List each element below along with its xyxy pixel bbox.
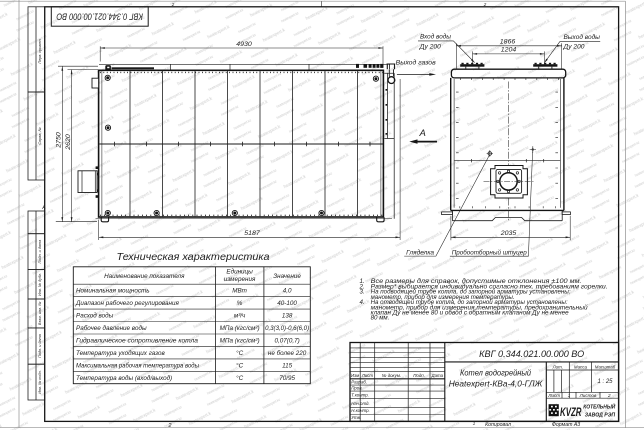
svg-text:Температура уходящих газов: Температура уходящих газов <box>76 349 165 357</box>
svg-text:2035: 2035 <box>500 230 517 237</box>
svg-text:МПа (кгс/см²): МПа (кгс/см²) <box>220 325 260 332</box>
svg-text:4,0: 4,0 <box>283 288 292 295</box>
svg-text:КВГ 0.344.021.00.000 ВО: КВГ 0.344.021.00.000 ВО <box>479 349 584 359</box>
svg-text:Вход воды: Вход воды <box>420 33 451 41</box>
svg-text:Единицы: Единицы <box>226 268 253 276</box>
svg-text:°С: °С <box>236 349 244 357</box>
svg-text:Выход газов: Выход газов <box>396 59 437 67</box>
svg-text:Перв. примен.: Перв. примен. <box>38 38 42 63</box>
svg-text:Значение: Значение <box>273 273 301 280</box>
svg-text:Пров.: Пров. <box>351 386 363 391</box>
svg-text:Инв. № дубл.: Инв. № дубл. <box>38 273 42 296</box>
svg-text:3.: 3. <box>360 289 365 296</box>
svg-text:Гидравлическое сопротивление к: Гидравлическое сопротивление котла <box>76 337 199 345</box>
svg-text:%: % <box>237 300 243 307</box>
svg-text:Взам. инв. №: Взам. инв. № <box>38 302 42 325</box>
svg-text:Пробоотборный штуцер: Пробоотборный штуцер <box>452 249 527 257</box>
svg-text:5187: 5187 <box>244 230 260 237</box>
svg-text:Утв.: Утв. <box>351 415 361 420</box>
svg-text:Диапазон рабочего регулировани: Диапазон рабочего регулирования <box>75 299 179 307</box>
svg-text:70/95: 70/95 <box>279 375 295 382</box>
svg-text:Выход воды: Выход воды <box>563 33 600 41</box>
svg-text:1866: 1866 <box>500 39 516 46</box>
svg-text:КВГ 0.344.021.00.000 ВО: КВГ 0.344.021.00.000 ВО <box>56 11 143 21</box>
svg-text:Подп. и дата: Подп. и дата <box>38 334 42 358</box>
svg-text:Дата: Дата <box>431 373 444 378</box>
svg-text:Heatexpert-КВа-4,0-ГЛЖ: Heatexpert-КВа-4,0-ГЛЖ <box>449 379 544 389</box>
svg-text:МПа (кгс/см²): МПа (кгс/см²) <box>220 338 260 345</box>
svg-text:Рабочее давление воды: Рабочее давление воды <box>76 324 147 332</box>
svg-text:Нач.отд.: Нач.отд. <box>351 401 370 406</box>
svg-text:измерения: измерения <box>224 276 256 283</box>
svg-text:Номинальная мощность: Номинальная мощность <box>76 288 150 295</box>
svg-text:Максимальная рабочая температу: Максимальная рабочая температура воды <box>76 361 199 369</box>
svg-text:Подп.: Подп. <box>413 373 425 378</box>
svg-text:80 мм.: 80 мм. <box>371 315 390 322</box>
svg-text:1204: 1204 <box>501 47 517 54</box>
svg-text:МВт: МВт <box>232 288 247 295</box>
svg-text:Н.контр.: Н.контр. <box>351 408 370 413</box>
svg-text:А: А <box>41 205 46 211</box>
svg-text:Техническая характеристика: Техническая характеристика <box>117 252 270 263</box>
svg-text:Копировал: Копировал <box>485 422 511 428</box>
svg-text:клапан Ду не менее 80 и обвод: клапан Ду не менее 80 и обвод с обратным… <box>371 310 570 317</box>
svg-text:Лист: Лист <box>547 393 560 398</box>
svg-text:115: 115 <box>282 362 293 369</box>
svg-text:0,3(3,0)-0,6(6,0): 0,3(3,0)-0,6(6,0) <box>265 325 309 332</box>
svg-text:Подп. и дата: Подп. и дата <box>38 240 42 264</box>
svg-text:2: 2 <box>168 423 172 429</box>
svg-text:138: 138 <box>282 313 293 320</box>
svg-text:А: А <box>419 128 426 139</box>
svg-text:Масса: Масса <box>574 365 588 370</box>
svg-text:Ду 200: Ду 200 <box>419 44 441 51</box>
svg-text:Гляделка: Гляделка <box>406 249 435 257</box>
svg-text:КОТЕЛЬНЫЙ: КОТЕЛЬНЫЙ <box>583 402 615 410</box>
svg-text:Температура воды (вход/выход): Температура воды (вход/выход) <box>76 374 172 382</box>
svg-text:Справ. №: Справ. № <box>38 127 42 144</box>
svg-text:Лист: Лист <box>361 373 374 378</box>
svg-text:Инв. № подл.: Инв. № подл. <box>38 370 42 394</box>
svg-text:№ докум.: № докум. <box>382 373 401 378</box>
svg-text:Т.контр.: Т.контр. <box>351 393 369 398</box>
svg-text:KVZR: KVZR <box>560 405 582 419</box>
svg-text:40-100: 40-100 <box>277 300 297 307</box>
svg-text:Масштаб: Масштаб <box>595 365 616 370</box>
svg-text:Ду 200: Ду 200 <box>562 44 584 51</box>
svg-text:Изм: Изм <box>351 373 359 378</box>
svg-text:Котел водогрейный: Котел водогрейный <box>460 368 531 378</box>
svg-text:2620: 2620 <box>65 134 72 151</box>
svg-text:не более 220: не более 220 <box>268 349 307 357</box>
svg-text:°С: °С <box>236 361 244 369</box>
svg-text:1 : 25: 1 : 25 <box>597 379 613 385</box>
svg-text:°С: °С <box>236 374 244 382</box>
svg-text:Наименование показателя: Наименование показателя <box>104 273 185 280</box>
svg-text:Лит.: Лит. <box>552 365 563 370</box>
svg-text:Расход воды: Расход воды <box>76 312 114 320</box>
svg-text:4.: 4. <box>360 299 365 306</box>
svg-text:м³/ч: м³/ч <box>234 313 246 320</box>
svg-text:Разраб.: Разраб. <box>351 380 367 385</box>
svg-text:1: 1 <box>568 393 571 398</box>
svg-text:2750: 2750 <box>55 132 62 149</box>
svg-text:Листов: Листов <box>579 393 597 398</box>
svg-text:ЗАВОД РЭП: ЗАВОД РЭП <box>585 413 616 419</box>
svg-text:Формат А3: Формат А3 <box>552 422 580 428</box>
svg-text:0,07(0,7): 0,07(0,7) <box>274 338 299 345</box>
svg-text:4930: 4930 <box>236 41 252 48</box>
svg-text:2: 2 <box>607 393 611 398</box>
